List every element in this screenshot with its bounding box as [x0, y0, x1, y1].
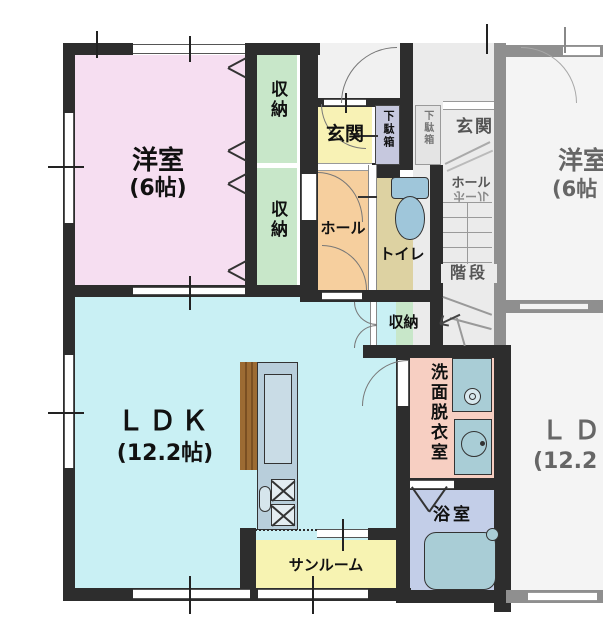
wall-washroom-top — [363, 345, 511, 358]
label-stairs: 階段 — [441, 264, 497, 283]
refrigerator-icon — [264, 374, 292, 464]
partition-hall-toilet — [368, 165, 377, 290]
label-entrance-left: 玄関 — [318, 123, 372, 145]
label-closet-lower: 収納 — [267, 200, 287, 240]
dimension-tick — [312, 576, 314, 614]
counter-edge-dotted — [250, 529, 317, 531]
label-toilet: トイレ — [377, 246, 427, 264]
dimension-tick — [345, 93, 347, 113]
door-opening-yoshitsu — [301, 174, 317, 220]
window-neighbor-bottom — [528, 592, 597, 601]
label-western-room-left-size: (6帖) — [98, 176, 218, 202]
window-neighbor-top — [563, 46, 600, 56]
wall-porch-divider — [400, 43, 413, 170]
wall-bath-bottom — [396, 590, 511, 603]
label-ld-right: ＬＤ — [541, 416, 603, 447]
dimension-tick — [48, 166, 84, 168]
sink-basin-icon — [469, 393, 476, 400]
opening-neighbor-mid — [520, 303, 588, 310]
door-opening-hall-ldk — [322, 292, 362, 300]
bath-faucet-icon — [486, 528, 499, 541]
label-shoe-cabinet-right: 下駄箱 — [421, 110, 433, 146]
bathtub-icon — [424, 532, 496, 590]
label-ld-right-size: (12.2 — [533, 449, 597, 475]
washing-machine-dot-icon — [480, 441, 485, 446]
dimension-tick — [189, 576, 191, 614]
toilet-door-mark — [358, 196, 377, 198]
wall-closet-left — [245, 55, 257, 285]
wall-closet-right — [300, 43, 318, 302]
label-hall-right-mirrored: ホール — [446, 189, 496, 203]
wall-party-lower — [494, 345, 511, 612]
label-hall-left: ホール — [318, 220, 368, 238]
dimension-tick — [486, 24, 488, 54]
dimension-tick — [96, 31, 98, 58]
window-left-upper — [64, 113, 74, 223]
label-shoe-cabinet-left: 下駄箱 — [381, 110, 394, 149]
window-bottom-ldk — [133, 589, 250, 599]
dimension-tick — [342, 519, 344, 551]
label-ldk: ＬＤＫ — [85, 406, 245, 438]
label-western-room-right-size: (6帖 — [552, 177, 597, 202]
door-opening-bath — [410, 480, 454, 489]
label-bathroom: 浴室 — [410, 505, 496, 525]
label-sunroom: サンルーム — [256, 557, 396, 575]
label-western-room-left: 洋室 — [98, 146, 218, 177]
wall-sunroom-top — [368, 528, 396, 540]
floorplan: 洋室 (6帖) 収納 収納 玄関 下駄箱 ホール トイレ 収納 洗面脱衣室 浴室… — [0, 0, 603, 640]
label-western-room-right: 洋室 — [558, 146, 603, 176]
label-ldk-size: (12.2帖) — [75, 441, 255, 467]
label-washroom: 洗面脱衣室 — [427, 363, 447, 463]
kitchen-sink-icon — [259, 486, 271, 512]
label-closet-small: 収納 — [377, 314, 430, 332]
dimension-tick — [189, 36, 191, 62]
dimension-tick — [48, 412, 84, 414]
toilet-bowl-icon — [395, 196, 425, 240]
neighbor-unit-area — [506, 55, 603, 590]
dimension-tick — [189, 276, 191, 310]
entry-step-right — [443, 101, 494, 110]
genkan-step-edge — [318, 163, 372, 171]
label-closet-upper: 収納 — [267, 80, 287, 120]
dimension-tick — [564, 27, 566, 53]
label-entrance-right: 玄関 — [447, 117, 503, 137]
